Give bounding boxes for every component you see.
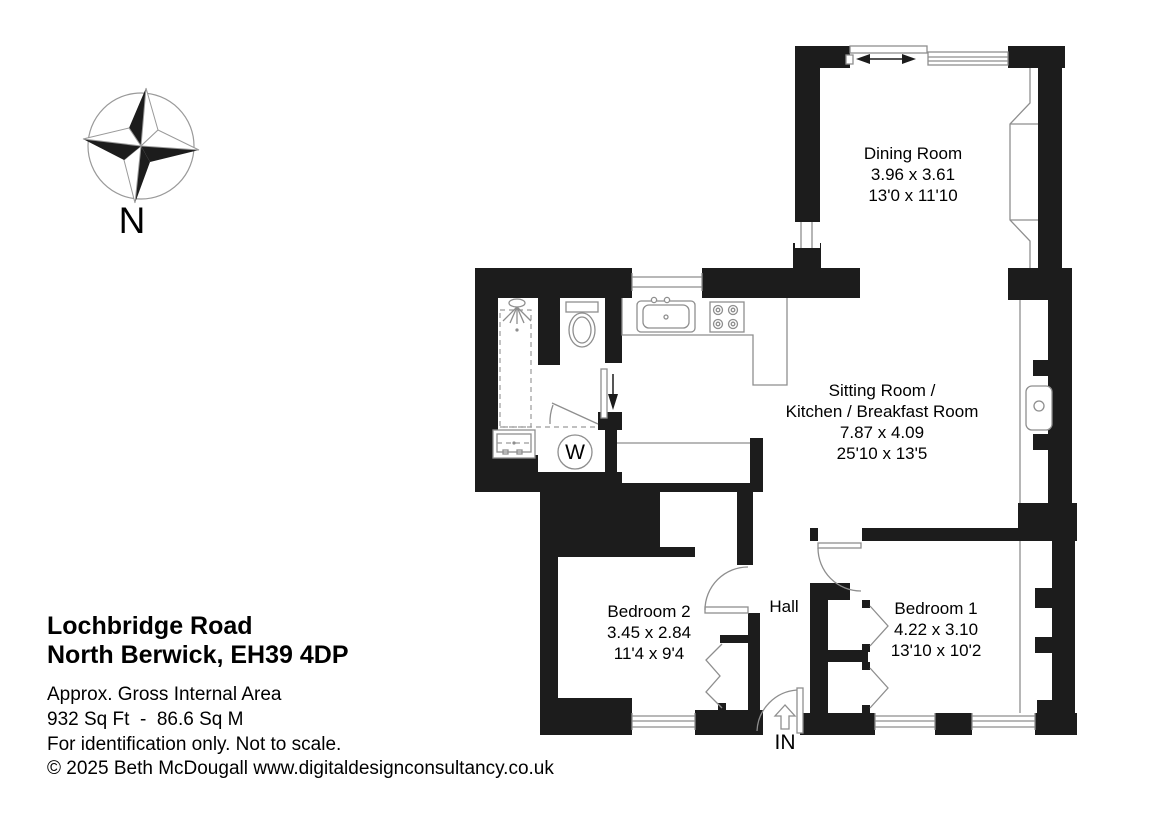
- sliding-door-bracket: [846, 55, 853, 64]
- title-block: Lochbridge Road North Berwick, EH39 4DP …: [47, 612, 554, 782]
- wall-segment: [810, 583, 850, 600]
- window: [795, 222, 820, 248]
- floorplan-page: N Dining Room 3.96 x 3.61 13'0 x 11'10 S…: [0, 0, 1170, 819]
- compass-north-label: N: [119, 200, 146, 242]
- sliding-door: [850, 46, 927, 53]
- wall-segment: [538, 298, 560, 365]
- entrance-label: IN: [775, 731, 796, 755]
- room-label-sitting: Sitting Room / Kitchen / Breakfast Room …: [786, 380, 979, 464]
- shower-icon: [500, 299, 531, 427]
- wall-segment: [1052, 541, 1075, 735]
- door-opening: [818, 528, 862, 541]
- room-name: Bedroom 1: [891, 598, 982, 619]
- compass-rose-icon: [83, 88, 199, 203]
- sliding-arrow-icon: [856, 54, 916, 64]
- area-value: 932 Sq Ft - 86.6 Sq M: [47, 708, 554, 733]
- chimney-tab: [1033, 360, 1050, 376]
- wall-segment: [810, 600, 828, 713]
- wall-segment: [695, 710, 763, 735]
- wall-segment: [1035, 713, 1077, 735]
- room-name: Kitchen / Breakfast Room: [786, 401, 979, 422]
- room-metric: 4.22 x 3.10: [891, 619, 982, 640]
- kitchen-sink-icon: [637, 297, 695, 332]
- hob-icon: [710, 302, 744, 332]
- room-metric: 3.45 x 2.84: [607, 622, 691, 643]
- entrance-arrow-icon: [775, 705, 795, 729]
- wall-segment: [1018, 503, 1077, 541]
- room-metric: 7.87 x 4.09: [786, 422, 979, 443]
- wall-segment: [702, 268, 860, 298]
- room-name: Dining Room: [864, 143, 962, 164]
- alcove-tab: [1035, 637, 1052, 653]
- basin-icon: [493, 430, 535, 458]
- room-name: Sitting Room /: [786, 380, 979, 401]
- washing-machine-label: W: [565, 441, 585, 465]
- room-label-bedroom1: Bedroom 1 4.22 x 3.10 13'10 x 10'2: [891, 598, 982, 661]
- room-imperial: 13'10 x 10'2: [891, 640, 982, 661]
- wall-segment: [750, 438, 763, 485]
- door-jamb: [862, 662, 870, 670]
- direction-arrow-head: [608, 394, 618, 410]
- door-jamb: [862, 705, 870, 713]
- toilet-icon: [566, 302, 598, 347]
- chimney-tab: [1033, 434, 1050, 450]
- area-label: Approx. Gross Internal Area: [47, 683, 554, 708]
- bifold-door: [706, 644, 722, 708]
- wall-segment: [935, 713, 972, 735]
- room-metric: 3.96 x 3.61: [864, 164, 962, 185]
- wall-segment: [800, 713, 875, 735]
- wall-segment: [795, 46, 820, 224]
- room-label-hall: Hall: [769, 597, 798, 617]
- bifold-door: [870, 668, 888, 708]
- cupboard-shelf: [720, 635, 748, 643]
- room-imperial: 11'4 x 9'4: [607, 643, 691, 664]
- door-jamb: [862, 644, 870, 652]
- disclaimer: For identification only. Not to scale.: [47, 733, 554, 758]
- door-leaf: [705, 607, 748, 613]
- door-jamb: [862, 600, 870, 608]
- wall-segment: [475, 455, 538, 492]
- door-leaf: [601, 369, 607, 418]
- room-label-dining: Dining Room 3.96 x 3.61 13'0 x 11'10: [864, 143, 962, 206]
- door-leaf: [797, 688, 803, 733]
- window: [928, 52, 1008, 65]
- fireplace-icon: [1026, 386, 1052, 430]
- wall-segment: [748, 613, 760, 713]
- wall-segment: [605, 430, 617, 485]
- copyright: © 2025 Beth McDougall www.digitaldesignc…: [47, 757, 554, 782]
- room-imperial: 25'10 x 13'5: [786, 443, 979, 464]
- wall-segment: [605, 268, 622, 363]
- walls: [475, 46, 1077, 735]
- address-line2: North Berwick, EH39 4DP: [47, 641, 554, 670]
- room-name: Bedroom 2: [607, 601, 691, 622]
- wall-segment: [1038, 60, 1062, 270]
- room-imperial: 13'0 x 11'10: [864, 185, 962, 206]
- window: [632, 268, 702, 298]
- alcove-tab: [1035, 588, 1052, 608]
- door-swing: [705, 567, 748, 610]
- wall-segment: [660, 547, 695, 557]
- bifold-door: [870, 606, 888, 646]
- door-leaf: [818, 543, 861, 548]
- wall-segment: [737, 483, 753, 565]
- address-line1: Lochbridge Road: [47, 612, 554, 641]
- wall-segment: [1008, 268, 1072, 300]
- room-label-bedroom2: Bedroom 2 3.45 x 2.84 11'4 x 9'4: [607, 601, 691, 664]
